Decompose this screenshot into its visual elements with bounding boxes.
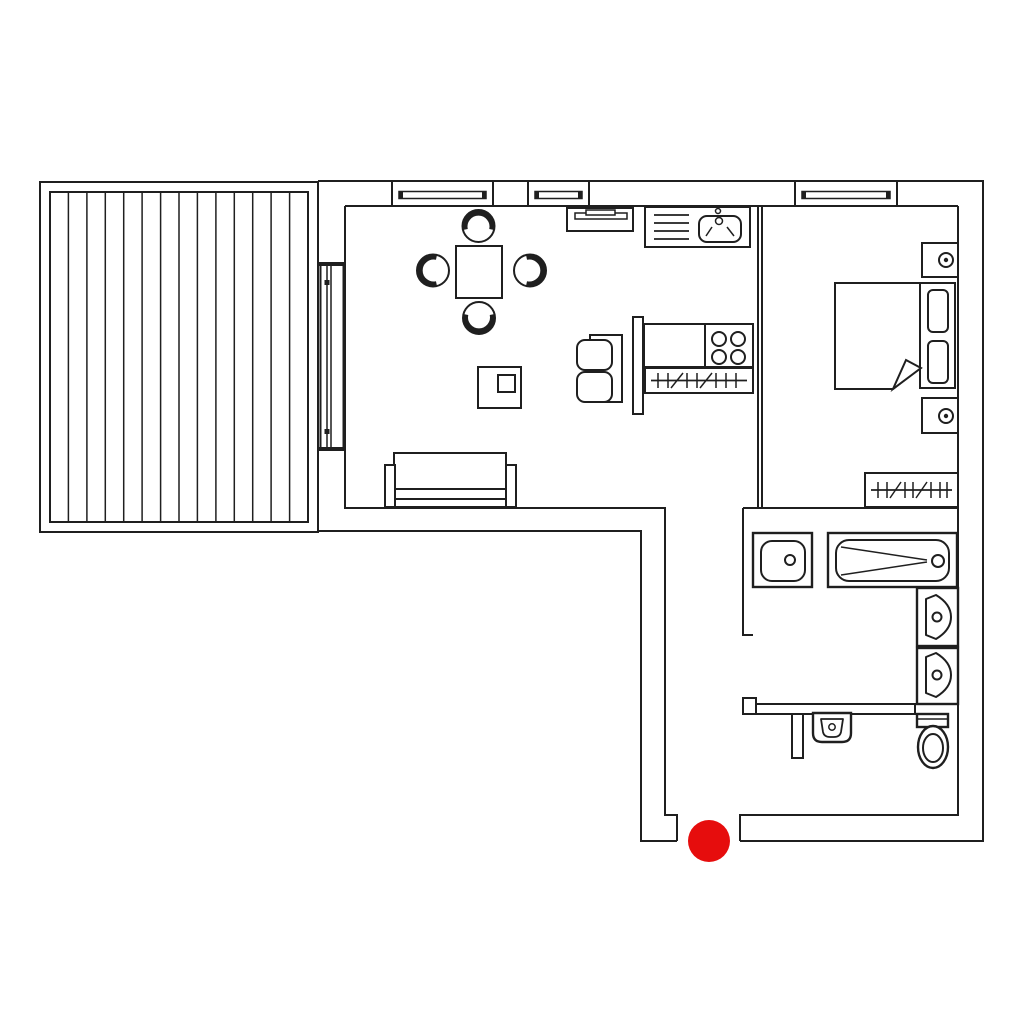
washbasin-1 — [917, 588, 958, 646]
pillow — [928, 341, 948, 383]
loveseat-cushion — [577, 340, 612, 370]
loveseat-cushion — [577, 372, 612, 402]
deck-planks — [68, 192, 289, 522]
side-table — [478, 367, 521, 408]
deck-terrace — [40, 182, 318, 532]
dining-chair-top — [463, 210, 495, 242]
kitchen-sink-counter — [645, 207, 750, 247]
red-dot-marker[interactable] — [688, 820, 730, 862]
sliding-door-end-bar — [318, 262, 345, 266]
window-bedroom — [795, 181, 897, 206]
kitchen-radiator — [645, 368, 753, 393]
bedroom-radiator — [865, 473, 958, 507]
kitchen-area — [644, 207, 753, 393]
wall-shelf — [567, 208, 633, 231]
bedroom-area — [835, 243, 958, 507]
sliding-door-handle — [325, 429, 330, 434]
sofa — [385, 453, 516, 507]
window-living-2 — [528, 181, 589, 206]
double-bed — [835, 283, 955, 389]
stove-counter — [644, 324, 753, 367]
outer-wall — [318, 181, 983, 841]
windows — [392, 181, 897, 206]
bathroom-west-wall — [743, 508, 753, 636]
dining-table — [456, 246, 502, 298]
shower-tray — [753, 533, 812, 587]
bathtub — [828, 533, 957, 587]
sliding-door-end-bar — [318, 447, 345, 451]
washbasin-2 — [917, 648, 958, 704]
dining-chair-right — [514, 255, 546, 287]
toilet — [917, 714, 948, 768]
wc-washbasin — [813, 713, 851, 742]
nightstand-bottom — [922, 398, 958, 433]
sliding-door-handle — [325, 280, 330, 285]
floorplan-svg — [0, 0, 1024, 1024]
nightstand-top — [922, 243, 958, 277]
wc-area — [813, 713, 948, 768]
pillow — [928, 290, 948, 332]
floorplan-canvas — [0, 0, 1024, 1024]
walls — [318, 181, 983, 841]
window-living-1 — [392, 181, 493, 206]
dining-chair-bottom — [463, 302, 495, 334]
wc-partition-stub — [743, 698, 756, 714]
bathroom-area — [753, 533, 958, 704]
living-dining-area — [385, 208, 633, 507]
dining-chair-left — [417, 255, 449, 287]
wc-partition-post — [792, 714, 803, 758]
kitchen-half-wall — [633, 317, 643, 414]
sliding-door — [318, 262, 345, 451]
loveseat — [577, 335, 622, 402]
kitchen-bedroom-wall — [758, 206, 762, 508]
